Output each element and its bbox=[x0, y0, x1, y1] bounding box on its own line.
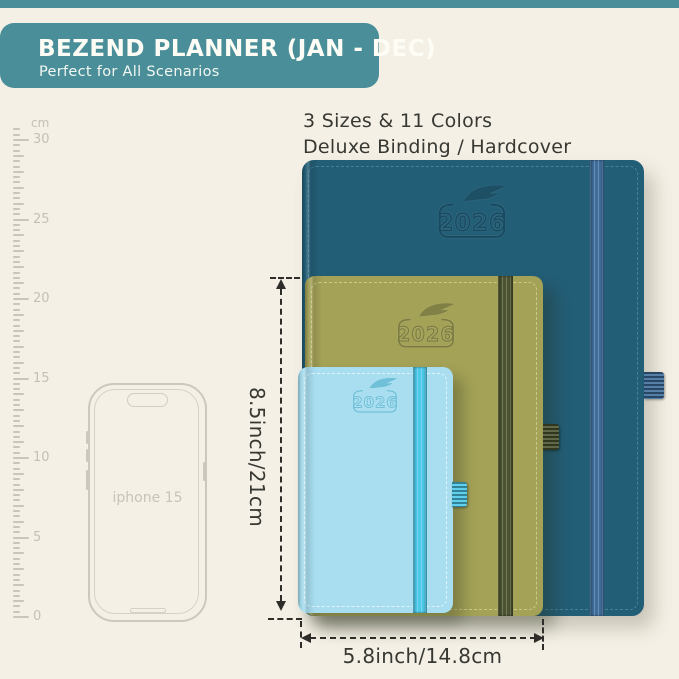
year-logo: 2026 bbox=[389, 302, 463, 352]
ruler-tick bbox=[13, 367, 20, 369]
ruler-tick bbox=[13, 600, 24, 602]
ruler-tick bbox=[13, 494, 20, 496]
ruler-tick bbox=[13, 208, 20, 210]
pen-loop bbox=[452, 482, 467, 507]
ruler-tick bbox=[13, 128, 20, 130]
ruler-tick bbox=[13, 420, 20, 422]
elastic-band bbox=[498, 276, 513, 616]
year-logo: 2026 bbox=[428, 184, 516, 243]
ruler-tick bbox=[13, 240, 20, 242]
arrow-up-icon bbox=[276, 279, 286, 289]
ruler-tick bbox=[13, 351, 20, 353]
phone-camera-pill-icon bbox=[127, 393, 168, 407]
ruler-tick bbox=[13, 393, 24, 395]
ruler-tick bbox=[13, 234, 24, 236]
page-title: BEZEND PLANNER (JAN - DEC) bbox=[38, 36, 368, 62]
page-subtitle: Perfect for All Scenarios bbox=[39, 64, 220, 80]
product-image: BEZEND PLANNER (JAN - DEC) Perfect for A… bbox=[0, 0, 679, 679]
width-dimension-line bbox=[310, 637, 536, 639]
ruler-tick bbox=[13, 224, 20, 226]
phone-action-button bbox=[86, 470, 89, 490]
ruler-tick bbox=[13, 340, 20, 342]
ruler-tick bbox=[13, 605, 20, 607]
ruler-tick bbox=[13, 277, 20, 279]
ruler-tick bbox=[13, 166, 20, 168]
ruler-label: 15 bbox=[33, 371, 50, 386]
ruler-tick bbox=[13, 446, 20, 448]
ruler-tick bbox=[13, 293, 20, 295]
ruler-label: 25 bbox=[33, 212, 50, 227]
elastic-band bbox=[413, 367, 427, 613]
ruler-tick bbox=[13, 197, 20, 199]
ruler-tick bbox=[13, 245, 20, 247]
ruler-tick bbox=[13, 473, 24, 475]
phone-power-button bbox=[203, 462, 206, 481]
phone-label: iphone 15 bbox=[90, 490, 205, 506]
ruler-tick bbox=[13, 457, 29, 459]
ruler-tick bbox=[13, 452, 20, 454]
ruler-tick bbox=[13, 229, 20, 231]
ruler-tick bbox=[13, 510, 20, 512]
ruler-tick bbox=[13, 287, 20, 289]
ruler-tick bbox=[13, 213, 20, 215]
pen-loop bbox=[644, 372, 664, 399]
ruler-tick bbox=[13, 547, 20, 549]
ruler: cm 302520151050 bbox=[0, 0, 60, 679]
ruler-tick bbox=[13, 134, 20, 136]
width-extension-right bbox=[542, 619, 544, 650]
ruler-tick bbox=[13, 372, 20, 374]
ruler-label: 0 bbox=[33, 609, 41, 624]
ruler-tick bbox=[13, 542, 20, 544]
ruler-tick bbox=[13, 309, 20, 311]
phone-bottom-port bbox=[130, 608, 166, 613]
ruler-tick bbox=[13, 378, 29, 380]
height-extension-top bbox=[270, 277, 300, 279]
phone-volume-button bbox=[86, 449, 89, 462]
ruler-tick bbox=[13, 404, 20, 406]
ruler-tick bbox=[13, 256, 20, 258]
ruler-tick bbox=[13, 261, 20, 263]
ruler-tick bbox=[13, 415, 20, 417]
ruler-tick bbox=[13, 616, 29, 618]
ruler-tick bbox=[13, 537, 29, 539]
height-dimension-line bbox=[280, 289, 282, 601]
ruler-tick bbox=[13, 150, 20, 152]
ruler-tick bbox=[13, 362, 24, 364]
ruler-tick bbox=[13, 335, 20, 337]
ruler-tick bbox=[13, 314, 24, 316]
ruler-tick bbox=[13, 139, 29, 141]
ruler-label: 5 bbox=[33, 530, 41, 545]
width-label: 5.8inch/14.8cm bbox=[320, 644, 525, 668]
ruler-tick bbox=[13, 187, 24, 189]
ruler-tick bbox=[13, 526, 20, 528]
ruler-tick bbox=[13, 505, 24, 507]
ruler-tick bbox=[13, 515, 20, 517]
ruler-tick bbox=[13, 409, 24, 411]
ruler-unit-label: cm bbox=[31, 116, 49, 130]
ruler-tick bbox=[13, 484, 20, 486]
ruler-tick bbox=[13, 579, 20, 581]
arrow-down-icon bbox=[276, 601, 286, 611]
ruler-label: 10 bbox=[33, 450, 50, 465]
feature-line-binding: Deluxe Binding / Hardcover bbox=[303, 136, 571, 158]
ruler-tick bbox=[13, 330, 24, 332]
ruler-tick bbox=[13, 176, 20, 178]
feather-icon bbox=[465, 186, 505, 200]
planner-small: 2026 bbox=[298, 367, 453, 613]
phone-outline: iphone 15 bbox=[88, 383, 207, 622]
ruler-tick bbox=[13, 250, 24, 252]
ruler-tick bbox=[13, 219, 29, 221]
ruler-tick bbox=[13, 155, 24, 157]
ruler-tick bbox=[13, 595, 20, 597]
ruler-tick bbox=[13, 192, 20, 194]
height-extension-bottom bbox=[268, 618, 302, 620]
ruler-tick bbox=[13, 552, 24, 554]
ruler-tick bbox=[13, 468, 20, 470]
ruler-tick bbox=[13, 272, 20, 274]
ruler-tick bbox=[13, 203, 24, 205]
ruler-tick bbox=[13, 282, 24, 284]
feather-icon bbox=[420, 304, 453, 316]
ruler-tick bbox=[13, 399, 20, 401]
ruler-tick bbox=[13, 431, 20, 433]
ruler-tick bbox=[13, 584, 24, 586]
ruler-tick bbox=[13, 462, 20, 464]
phone-volume-button bbox=[86, 431, 89, 444]
ruler-tick bbox=[13, 356, 20, 358]
year-text: 2026 bbox=[437, 210, 506, 236]
year-logo: 2026 bbox=[346, 377, 404, 416]
height-label: 8.5inch/21cm bbox=[245, 387, 269, 517]
ruler-tick bbox=[13, 346, 24, 348]
year-text: 2026 bbox=[352, 394, 398, 412]
ruler-tick bbox=[13, 425, 24, 427]
ruler-tick bbox=[13, 568, 24, 570]
ruler-tick bbox=[13, 325, 20, 327]
ruler-label: 20 bbox=[33, 291, 50, 306]
feather-icon bbox=[370, 378, 396, 387]
ruler-tick bbox=[13, 590, 20, 592]
ruler-tick bbox=[13, 611, 20, 613]
ruler-tick bbox=[13, 303, 20, 305]
ruler-tick bbox=[13, 171, 24, 173]
pen-loop bbox=[543, 424, 559, 450]
ruler-tick bbox=[13, 388, 20, 390]
ruler-tick bbox=[13, 181, 20, 183]
ruler-tick bbox=[13, 574, 20, 576]
ruler-tick bbox=[13, 521, 24, 523]
ruler-label: 30 bbox=[33, 132, 50, 147]
ruler-tick bbox=[13, 383, 20, 385]
ruler-tick bbox=[13, 319, 20, 321]
ruler-tick bbox=[13, 266, 24, 268]
ruler-tick bbox=[13, 499, 20, 501]
top-accent-strip bbox=[0, 0, 679, 8]
elastic-band bbox=[590, 160, 604, 616]
ruler-tick bbox=[13, 558, 20, 560]
ruler-tick bbox=[13, 436, 20, 438]
ruler-tick bbox=[13, 531, 20, 533]
ruler-tick bbox=[13, 298, 29, 300]
ruler-tick bbox=[13, 489, 24, 491]
feature-line-sizes: 3 Sizes & 11 Colors bbox=[303, 110, 492, 132]
ruler-tick bbox=[13, 441, 24, 443]
arrow-left-icon bbox=[301, 633, 311, 643]
ruler-tick bbox=[13, 563, 20, 565]
year-text: 2026 bbox=[397, 323, 455, 346]
width-extension-left bbox=[300, 621, 302, 648]
ruler-tick bbox=[13, 144, 20, 146]
ruler-tick bbox=[13, 160, 20, 162]
ruler-tick bbox=[13, 478, 20, 480]
